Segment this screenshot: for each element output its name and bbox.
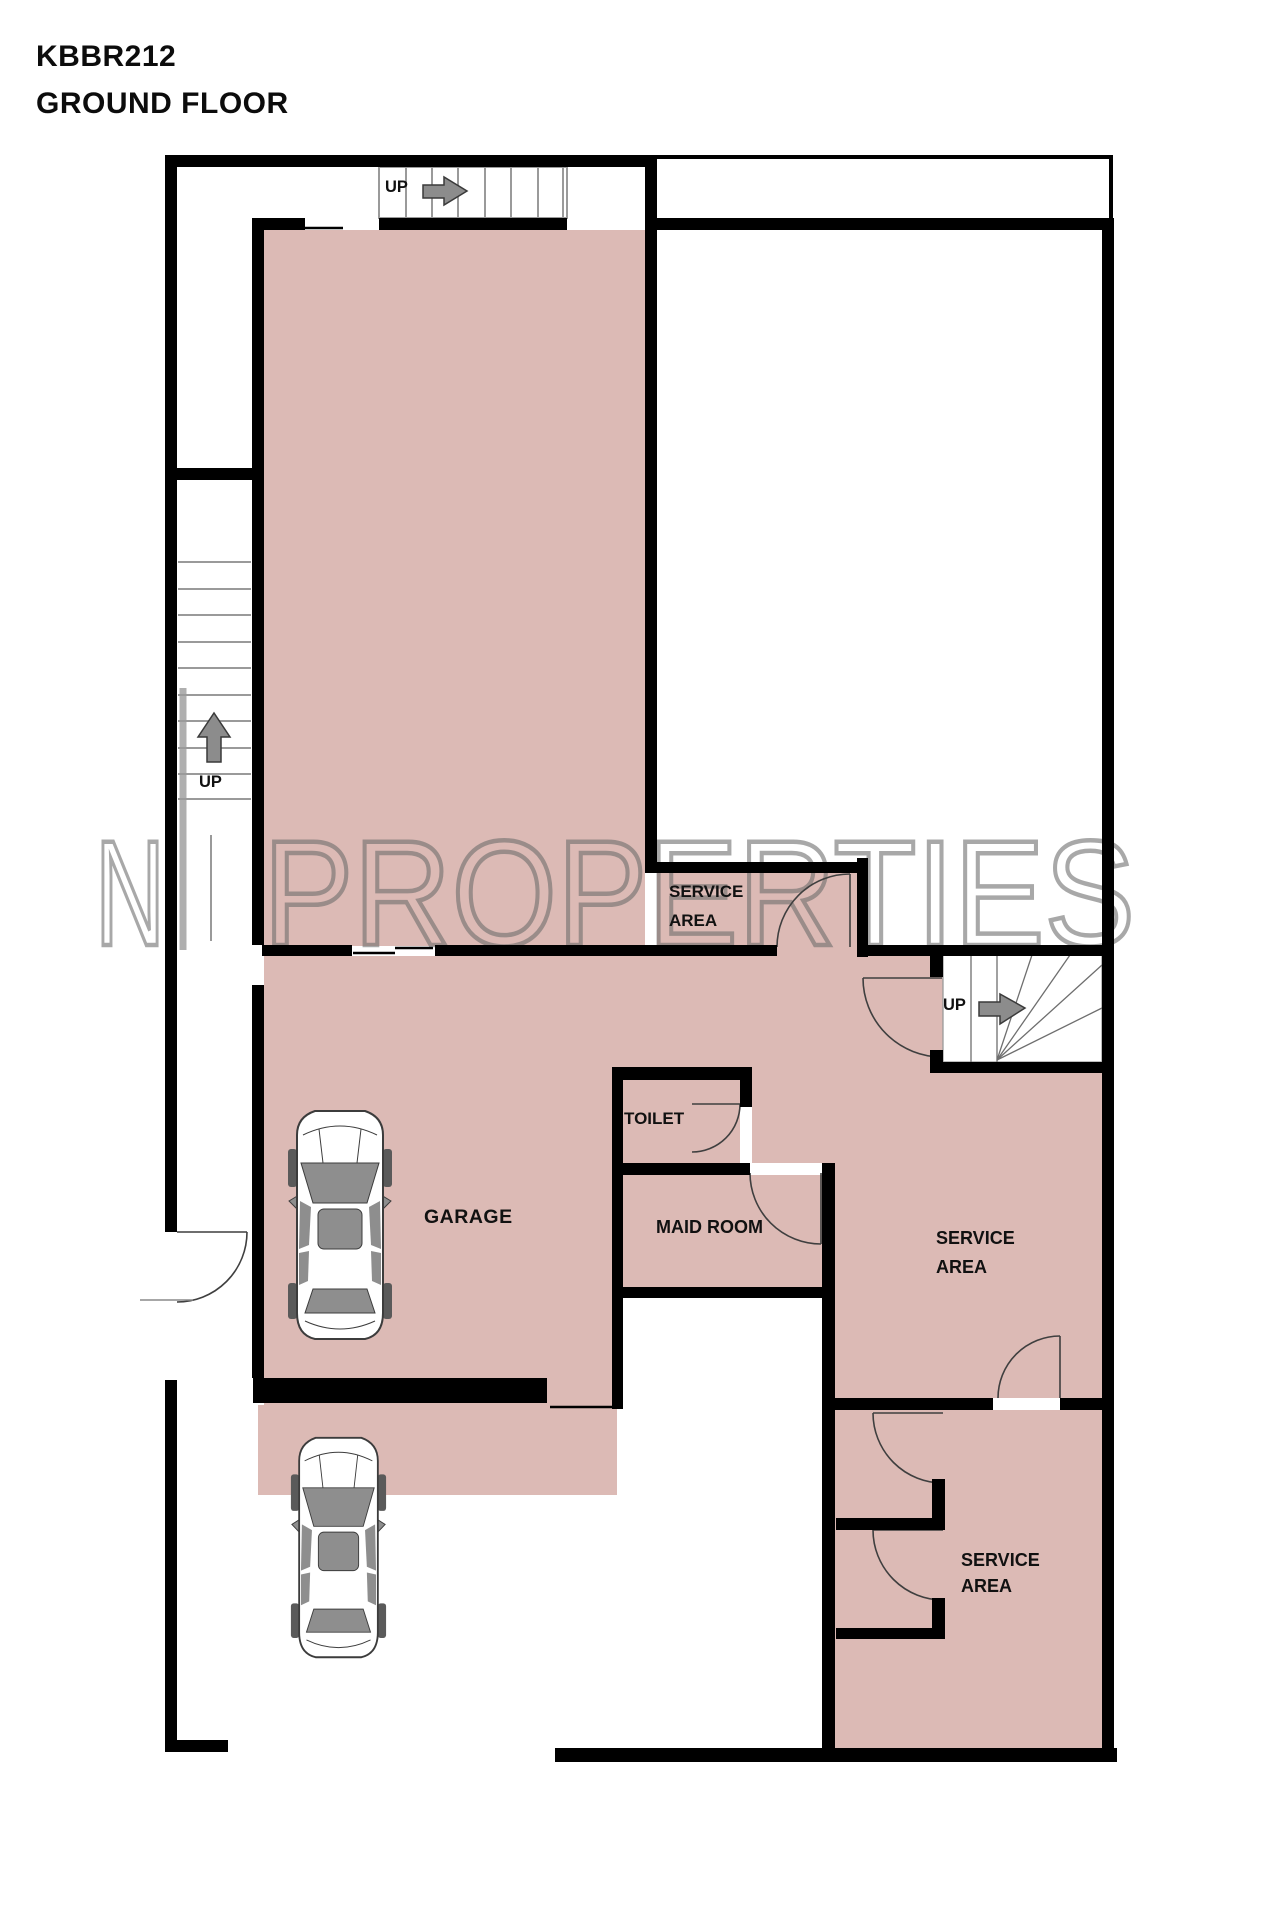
car-top-view-2: [291, 1438, 386, 1657]
service-area-1-label: SERVICE AREA: [669, 877, 743, 935]
wall-garage-left-lower: [252, 985, 264, 1378]
wall-mid-right: [868, 945, 1102, 956]
wall-outer-top-left: [165, 155, 657, 167]
wall-mid-stub: [262, 945, 352, 956]
service-area-2-line1: SERVICE: [936, 1224, 1015, 1253]
wall-corridor-divider: [177, 468, 252, 480]
wall-bigroom-top: [657, 218, 1103, 230]
wall-outer-right: [1102, 218, 1114, 1762]
watermark-letter: N: [95, 809, 165, 977]
wall-service3-top-left: [835, 1398, 993, 1410]
floorplan-page: N PROPERTIES: [0, 0, 1280, 1920]
title-block: KBBR212 GROUND FLOOR: [36, 40, 289, 121]
service-area-2-line2: AREA: [936, 1253, 1015, 1282]
up-label-right-stairs: UP: [943, 996, 966, 1015]
wall-service1-right: [857, 858, 868, 957]
plan-code: KBBR212: [36, 40, 289, 74]
service-area-1-line1: SERVICE: [669, 877, 743, 906]
wall-stairhall-bottom: [930, 1062, 1102, 1073]
wall-maid-right: [822, 1163, 835, 1758]
service-area-3-line2: AREA: [961, 1573, 1040, 1599]
wall-toilet-bottom: [612, 1163, 750, 1175]
wall-garage-bottom: [253, 1378, 547, 1403]
wall-outer-left-upper: [165, 167, 177, 1232]
wall-toilet-top: [612, 1067, 752, 1080]
service-area-3-line1: SERVICE: [961, 1547, 1040, 1573]
floorplan-drawing: N PROPERTIES: [0, 0, 1280, 1920]
up-label-top-stairs: UP: [385, 178, 408, 197]
service-area-1-line2: AREA: [669, 906, 743, 935]
wall-bottom-stub-left: [175, 1740, 228, 1752]
wall-cubicleA-bottom: [836, 1518, 945, 1530]
wall-mid-main: [435, 945, 777, 956]
wall-toilet-block-left: [612, 1067, 623, 1409]
maid-room-label: MAID ROOM: [656, 1217, 763, 1238]
door-entry-left: [140, 1232, 247, 1302]
service-area-3-label: SERVICE AREA: [961, 1547, 1040, 1599]
wall-under-top-stairs: [379, 218, 567, 230]
fill-right-of-toilet: [752, 1067, 835, 1163]
wall-stairhall-stub-top: [930, 955, 943, 977]
wall-outer-left-lower: [165, 1380, 177, 1752]
wall-garage-left-upper: [252, 218, 264, 945]
wall-service3-top-right: [1060, 1398, 1103, 1410]
garage-label: GARAGE: [424, 1206, 513, 1229]
wall-outer-bottom: [555, 1748, 1117, 1762]
wall-service1-top: [645, 862, 868, 873]
wall-garage-right: [645, 155, 657, 873]
up-label-left-stairs: UP: [199, 773, 222, 792]
toilet-label: TOILET: [624, 1109, 684, 1129]
wall-outer-top-right-thin: [657, 155, 1113, 159]
wall-cubicleB-bottom: [836, 1628, 945, 1639]
wall-top-right-edge: [1109, 155, 1113, 221]
wall-toilet-right-stub: [740, 1067, 752, 1107]
service-area-2-label: SERVICE AREA: [936, 1224, 1015, 1282]
floor-title: GROUND FLOOR: [36, 87, 289, 121]
wall-maid-bottom: [623, 1287, 835, 1298]
car-top-view-1: [288, 1111, 392, 1339]
